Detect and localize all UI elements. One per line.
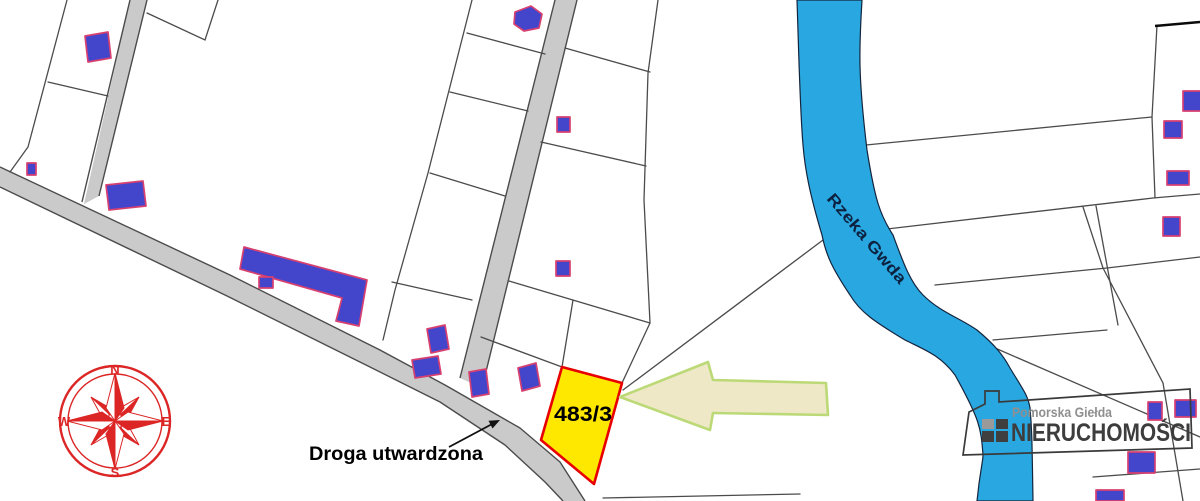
road-annotation: Droga utwardzona bbox=[309, 420, 500, 465]
building bbox=[85, 32, 111, 62]
building bbox=[1148, 402, 1162, 420]
building bbox=[518, 363, 540, 391]
building bbox=[556, 261, 570, 276]
left-road bbox=[84, 0, 147, 204]
highlight-arrow-icon bbox=[620, 362, 828, 430]
main-road bbox=[0, 167, 585, 501]
compass-s-label: S bbox=[111, 465, 120, 480]
building bbox=[514, 6, 542, 31]
building bbox=[427, 325, 449, 353]
logo-subtitle: Pomorska Giełda bbox=[1012, 404, 1112, 420]
central-road bbox=[460, 0, 577, 388]
compass-e-label: E bbox=[162, 414, 171, 429]
compass-n-label: N bbox=[110, 362, 119, 377]
road-label: Droga utwardzona bbox=[309, 444, 483, 465]
building bbox=[469, 369, 489, 397]
building bbox=[412, 356, 441, 378]
building bbox=[259, 277, 273, 288]
logo-title: NIERUCHOMOŚCI bbox=[1011, 417, 1191, 447]
compass-rose-icon: N E S W bbox=[58, 362, 171, 480]
compass-w-label: W bbox=[58, 414, 71, 429]
building bbox=[106, 181, 146, 210]
building bbox=[1167, 171, 1189, 185]
building bbox=[1164, 121, 1182, 138]
parcel-483-3-label: 483/3 bbox=[554, 403, 612, 426]
building bbox=[1175, 400, 1196, 417]
building bbox=[1163, 217, 1180, 236]
building bbox=[1096, 490, 1124, 501]
building bbox=[1128, 452, 1155, 473]
map-canvas: Rzeka Gwda 483/3 Droga utwardzona bbox=[0, 0, 1200, 501]
building bbox=[557, 117, 570, 132]
building bbox=[27, 163, 36, 175]
building bbox=[1183, 91, 1200, 111]
cadastral-map: Rzeka Gwda 483/3 Droga utwardzona bbox=[0, 0, 1200, 501]
